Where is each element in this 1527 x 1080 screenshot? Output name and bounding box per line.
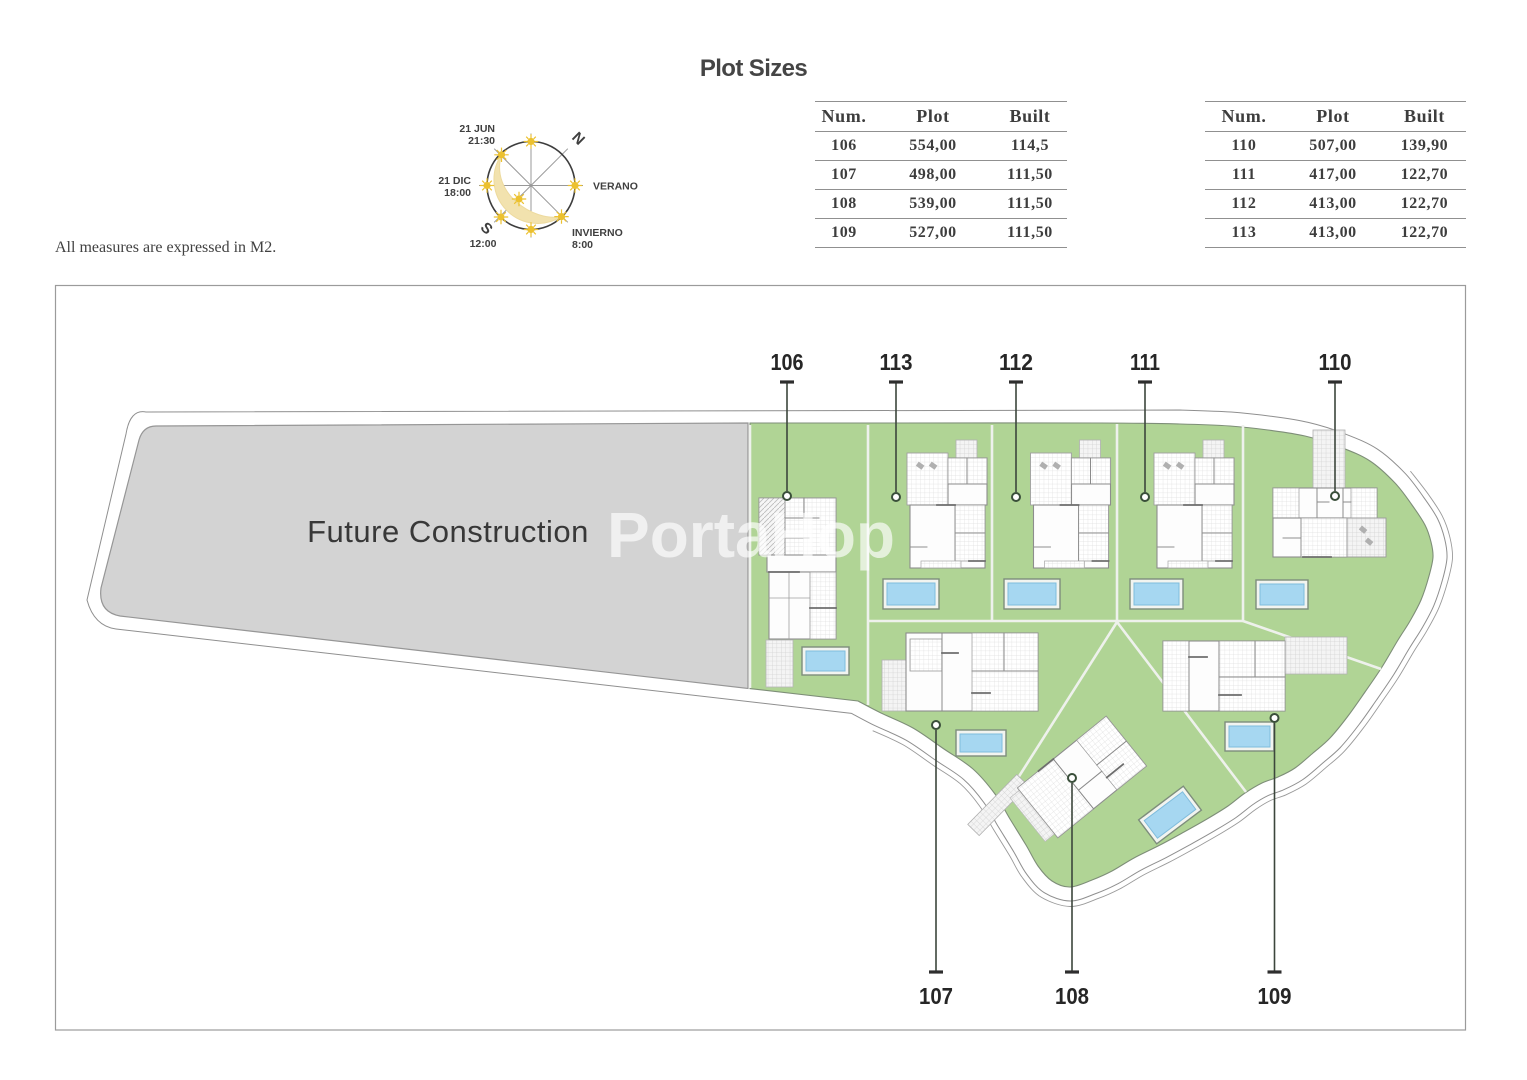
svg-text:8:00: 8:00 [572, 239, 593, 251]
svg-text:21 DIC: 21 DIC [438, 175, 471, 187]
svg-text:21:30: 21:30 [468, 135, 495, 147]
svg-text:12:00: 12:00 [470, 238, 497, 250]
svg-text:21 JUN: 21 JUN [459, 123, 495, 135]
svg-text:INVIERNO: INVIERNO [572, 227, 623, 239]
svg-text:VERANO: VERANO [593, 181, 638, 193]
svg-text:18:00: 18:00 [444, 187, 471, 199]
svg-text:110: 110 [1319, 349, 1352, 375]
svg-text:112: 112 [999, 349, 1033, 375]
svg-text:N: N [568, 129, 588, 149]
svg-text:PortaHop: PortaHop [607, 499, 895, 571]
svg-text:Future Construction: Future Construction [307, 514, 589, 549]
svg-text:109: 109 [1258, 983, 1292, 1009]
svg-text:108: 108 [1055, 983, 1089, 1009]
svg-text:S: S [477, 219, 496, 238]
svg-text:106: 106 [771, 349, 804, 375]
svg-text:107: 107 [919, 983, 953, 1009]
svg-text:113: 113 [880, 349, 913, 375]
svg-text:111: 111 [1130, 349, 1160, 375]
